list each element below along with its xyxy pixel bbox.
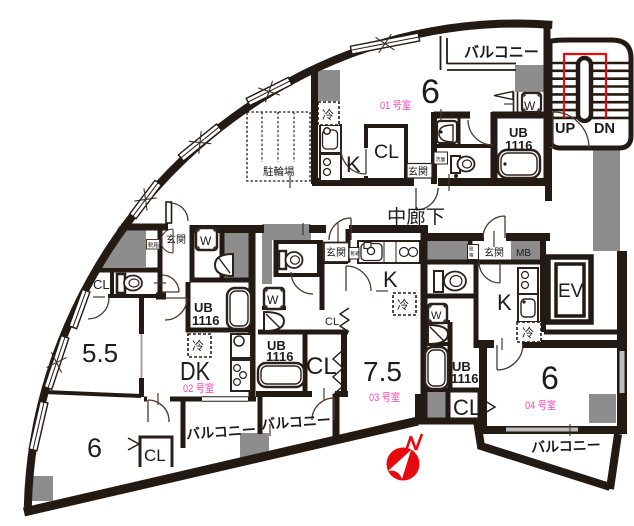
- svg-text:6: 6: [541, 360, 559, 396]
- svg-text:CL: CL: [144, 446, 166, 465]
- svg-text:1116: 1116: [451, 371, 479, 386]
- svg-text:箱: 箱: [469, 252, 474, 259]
- svg-text:洗面: 洗面: [436, 156, 446, 163]
- svg-text:DK: DK: [180, 356, 211, 386]
- svg-text:K: K: [383, 267, 398, 292]
- svg-text:バルコニー: バルコニー: [464, 44, 539, 61]
- svg-text:01 号室: 01 号室: [380, 98, 411, 112]
- svg-text:6: 6: [87, 433, 102, 463]
- svg-text:1116: 1116: [192, 313, 220, 328]
- svg-text:04 号室: 04 号室: [525, 398, 556, 412]
- svg-text:CL: CL: [93, 277, 110, 292]
- svg-text:W: W: [524, 99, 536, 113]
- svg-text:CL: CL: [306, 353, 337, 380]
- svg-text:玄関: 玄関: [484, 246, 504, 259]
- svg-text:CL: CL: [453, 395, 481, 420]
- svg-text:K: K: [497, 290, 512, 315]
- svg-text:1116: 1116: [266, 349, 294, 364]
- svg-text:W: W: [431, 310, 442, 322]
- svg-text:玄関: 玄関: [408, 165, 428, 178]
- svg-text:冷: 冷: [322, 108, 334, 122]
- svg-text:靴箱: 靴箱: [351, 250, 360, 257]
- svg-text:CL: CL: [374, 142, 399, 163]
- svg-text:6: 6: [421, 73, 440, 111]
- svg-text:UP: UP: [555, 121, 575, 137]
- svg-text:W: W: [200, 234, 212, 248]
- svg-text:DN: DN: [594, 121, 615, 137]
- svg-text:冷: 冷: [397, 298, 409, 312]
- svg-text:7.5: 7.5: [363, 356, 402, 387]
- svg-text:中廊下: 中廊下: [387, 206, 445, 228]
- svg-text:バルコニー: バルコニー: [531, 437, 601, 455]
- svg-text:1116: 1116: [505, 138, 533, 153]
- svg-text:靴箱: 靴箱: [148, 241, 160, 249]
- svg-text:5.5: 5.5: [82, 338, 118, 368]
- svg-text:冷: 冷: [192, 339, 204, 353]
- svg-text:MB: MB: [516, 248, 531, 259]
- svg-text:03 号室: 03 号室: [369, 390, 400, 404]
- svg-text:02 号室: 02 号室: [183, 381, 214, 395]
- svg-text:K: K: [346, 152, 361, 177]
- svg-text:EV: EV: [558, 281, 584, 302]
- svg-text:玄関: 玄関: [326, 246, 346, 259]
- svg-text:W: W: [267, 293, 279, 307]
- svg-text:靴: 靴: [469, 246, 474, 253]
- svg-text:玄関: 玄関: [166, 233, 186, 246]
- svg-text:CL: CL: [325, 316, 339, 328]
- svg-text:冷: 冷: [522, 326, 534, 340]
